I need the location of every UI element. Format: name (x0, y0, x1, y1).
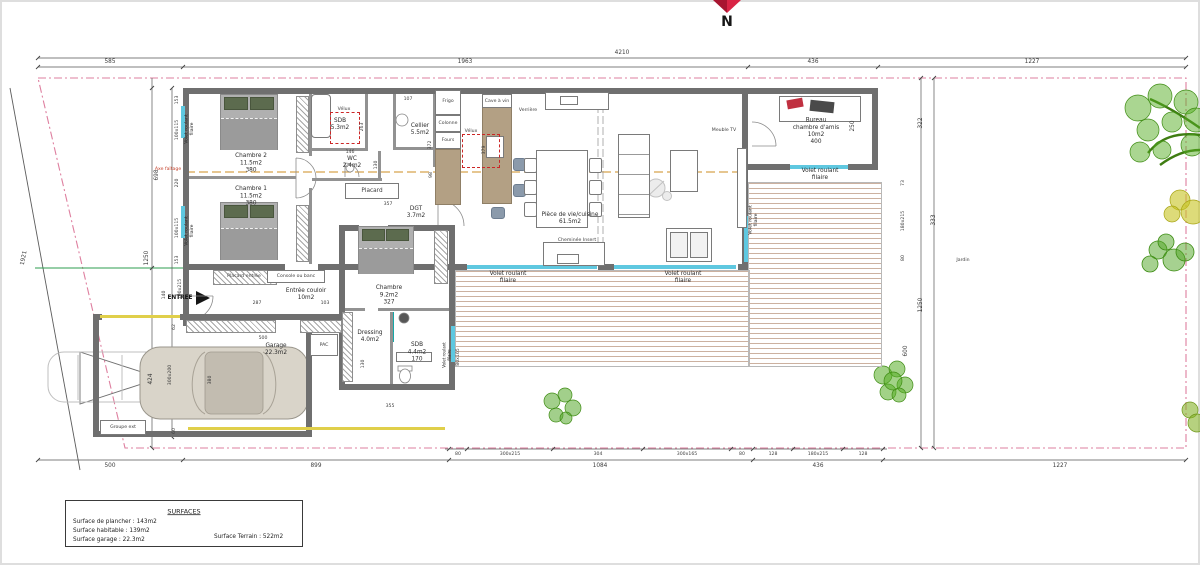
south-tree-icon (544, 388, 581, 424)
dim-label: 80 (900, 255, 905, 261)
dim-label: 60 (171, 428, 176, 434)
room-label-piece-vie: Pièce de vie/cuisine 61.5m2 (542, 211, 599, 225)
bench-cushion (670, 232, 688, 258)
dim-label: 333 (931, 214, 937, 225)
label-volet-west-1: Volet roulantfilaire (183, 114, 195, 144)
dim-label: 73 (900, 180, 905, 186)
room-label-chambre3: Chambre 9.2m2 327 (376, 284, 402, 306)
label-volet-east: Volet roulantfilaire (747, 205, 759, 235)
dim-label: 436 (807, 59, 818, 65)
legend-line-plancher: Surface de plancher : 143m2 (73, 518, 157, 524)
dim-label: 4210 (615, 50, 630, 56)
wall-chambre3-top-a (339, 225, 359, 231)
legend-line-habitable: Surface habitable : 139m2 (73, 527, 150, 533)
dim-label: 153 (174, 96, 179, 105)
room-label-dgt: DGT 3.7m2 (407, 205, 425, 219)
entrance-arrow-icon (196, 291, 210, 305)
desk-chair-dark (809, 100, 834, 113)
wardrobe-chambre1 (296, 205, 309, 262)
wall-living-south-a (455, 264, 467, 270)
dining-chair (524, 158, 537, 173)
wall-bedroom-divider (189, 176, 296, 179)
dim-label: 1250 (918, 298, 924, 313)
dim-label: 1227 (1053, 463, 1068, 469)
dim-label: 585 (104, 59, 115, 65)
north-arrow-icon (713, 0, 741, 13)
dim-label: 107 (404, 96, 413, 101)
dim-label: 300x165 (677, 451, 697, 456)
pillow (250, 205, 274, 218)
wall-bureau-bottom-a (748, 164, 790, 170)
room-label-chambre2: Chambre 2 11.5m2 380 (235, 152, 267, 174)
dim-label: 98 (428, 172, 433, 178)
garden-tree-icon (874, 361, 913, 402)
room-label-cellier: Cellier 5.5m2 (411, 122, 429, 136)
wall-bureau-right (872, 88, 878, 170)
dim-label: 100x115 (174, 120, 179, 140)
label-velux-kitchen: Vélux (465, 128, 478, 133)
armchair-symbol (647, 179, 672, 201)
dim-label: 424 (148, 373, 154, 384)
facade-line-yellow (188, 427, 445, 430)
porch-step-1 (186, 320, 276, 333)
dim-label: 899 (310, 463, 321, 469)
room-label-sdb1: SDB 5.3m2 (331, 117, 349, 131)
bush-yellow-icon (1164, 190, 1200, 224)
dim-label: 500 (259, 335, 268, 340)
dim-label: 698 (154, 169, 160, 180)
surfaces-legend: SURFACES Surface de plancher : 143m2 Sur… (65, 500, 303, 547)
dim-label: 322 (918, 117, 924, 128)
plant-spiky-icon (1142, 234, 1194, 272)
wardrobe-chambre3 (434, 230, 448, 284)
label-pac: PAC (320, 342, 329, 347)
dim-label: 180x215 (808, 451, 828, 456)
room-label-wc: WC 2.4m2 (343, 155, 361, 169)
dim-label: 379 (481, 146, 486, 155)
label-fours: Fours (442, 137, 455, 142)
dim-label: 146 (346, 149, 355, 154)
bed-blanket (221, 118, 277, 150)
tv-cabinet (737, 148, 747, 228)
dim-label: 128 (859, 451, 868, 456)
bed-blanket (221, 228, 277, 260)
legend-title: SURFACES (167, 508, 200, 515)
pillow (362, 229, 385, 241)
wall-dressing-divider (390, 312, 393, 384)
dim-label: 372 (427, 141, 432, 150)
bench-cushion (690, 232, 708, 258)
dim-label: 1084 (593, 463, 608, 469)
label-meuble-tv: Meuble TV (712, 127, 736, 132)
label-frigo: Frigo (442, 98, 453, 103)
garage-car (140, 347, 308, 419)
dim-label: 1227 (1025, 59, 1040, 65)
kitchen-cabinet (435, 149, 461, 205)
wall-sdb1-right (365, 94, 368, 151)
dining-chair (524, 202, 537, 217)
dim-label: 128 (769, 451, 778, 456)
dim-label: 130 (373, 161, 378, 170)
pillow (386, 229, 409, 241)
bed-blanket (359, 248, 413, 274)
dim-label: 300x215 (500, 451, 520, 456)
label-volet-south-2: Volet roulantfilaire (665, 270, 702, 284)
dim-label: 130 (360, 360, 365, 369)
label-cheminee: Cheminée Insert (558, 237, 596, 242)
pillow (250, 97, 274, 110)
label-colonne: Colonne (439, 120, 458, 125)
bathtub (311, 94, 331, 138)
wall-cellier-left (393, 94, 396, 150)
dim-label: 80 (455, 451, 461, 456)
label-volet-south-1: Volet roulantfilaire (490, 270, 527, 284)
edge-bush-icon (1182, 402, 1200, 432)
worktop-sink (560, 96, 578, 105)
shower-head-icon (399, 313, 409, 323)
wall-living-south-c (738, 264, 748, 270)
bar-stool-3 (491, 207, 505, 219)
label-verriere: Verrière (519, 107, 537, 112)
dim-label: 287 (253, 300, 262, 305)
wall-chambre3-bottom-b (378, 308, 449, 311)
dim-label: 80 (739, 451, 745, 456)
dim-label: 100x215 (177, 279, 182, 299)
label-velux-sdb: Vélux (338, 106, 351, 111)
dim-label: 263 (359, 123, 364, 132)
dim-label: 250 (850, 120, 856, 131)
dim-label: 180x215 (900, 211, 905, 231)
legend-line-terrain: Surface Terrain : 522m2 (214, 533, 283, 539)
label-groupe-ext: Groupe ext (110, 424, 136, 429)
wall-wc-bottom (312, 178, 382, 181)
label-volet-bureau: Volet roulantfilaire (802, 167, 839, 181)
dim-label: 300x200 (167, 365, 172, 385)
label-placard-entree: Placard entrée (227, 273, 261, 278)
dim-label: 600 (903, 345, 909, 356)
dining-chair (589, 180, 602, 195)
label-volet-west-2: Volet roulantfilaire (183, 216, 195, 246)
label-placard: Placard (361, 188, 382, 194)
dim-label: 62 (171, 324, 176, 330)
porch-step-2 (300, 320, 342, 333)
fireplace-hearth (557, 254, 579, 264)
wall-top-bureau (748, 88, 878, 94)
dim-label: 380 (207, 376, 212, 385)
window-living-south-2 (614, 265, 736, 269)
dining-chair (524, 180, 537, 195)
dim-label: 140 (161, 291, 166, 300)
wall-bureau-bottom-b (848, 164, 878, 170)
label-console: Console ou banc (277, 273, 315, 278)
label-volet-sdb2: Volet roulantfilaire (442, 342, 452, 367)
dim-label: 304 (594, 451, 603, 456)
wall-garage-left (93, 314, 99, 437)
dim-label: 80x165 (455, 348, 460, 366)
floor-plan-sheet: N Chambre 2 11.5m2 380 Chambre 1 11.5m2 … (0, 0, 1200, 565)
dim-label: 220 (174, 179, 179, 188)
dim-label: 1963 (458, 59, 473, 65)
terrace-deck-east (748, 182, 882, 367)
pillow (224, 97, 248, 110)
tree-large-icon (1125, 84, 1200, 165)
garage-door-yellow (100, 315, 180, 318)
room-label-bureau: Bureau chambre d'amis 10m2 400 (793, 117, 839, 146)
label-jardin: Jardin (956, 257, 969, 262)
wall-sdb1-bottom (312, 148, 368, 151)
sofa (618, 134, 650, 218)
dim-label: 1250 (144, 251, 150, 266)
dim-label: 103 (321, 300, 330, 305)
dim-label: 153 (174, 256, 179, 265)
dim-label: 500 (104, 463, 115, 469)
dim-label: 100x115 (174, 218, 179, 238)
dim-label: 357 (384, 201, 393, 206)
legend-line-garage: Surface garage : 22.3m2 (73, 536, 145, 542)
dim-label: 436 (812, 463, 823, 469)
room-label-garage: Garage 22.3m2 (265, 342, 287, 356)
pillow (224, 205, 248, 218)
coffee-table (670, 150, 698, 192)
section-lines (598, 94, 603, 264)
room-label-chambre1: Chambre 1 11.5m2 380 (235, 185, 267, 207)
north-label: N (721, 14, 733, 30)
dressing-shelves (342, 312, 353, 382)
room-label-sdb2: SDB 4.4m2 170 (408, 341, 426, 363)
terrace-deck-south (455, 270, 750, 367)
wall-bedroom-corridor-b (309, 188, 312, 264)
wardrobe-chambre2 (296, 96, 309, 153)
dining-chair (589, 158, 602, 173)
label-cave-vin: Cave à vin (485, 98, 509, 103)
dim-label: 355 (386, 403, 395, 408)
room-label-dressing: Dressing 4.0m2 (357, 329, 382, 343)
wall-block-bottom (339, 384, 455, 390)
wall-chambre3-bottom-a (345, 308, 365, 311)
